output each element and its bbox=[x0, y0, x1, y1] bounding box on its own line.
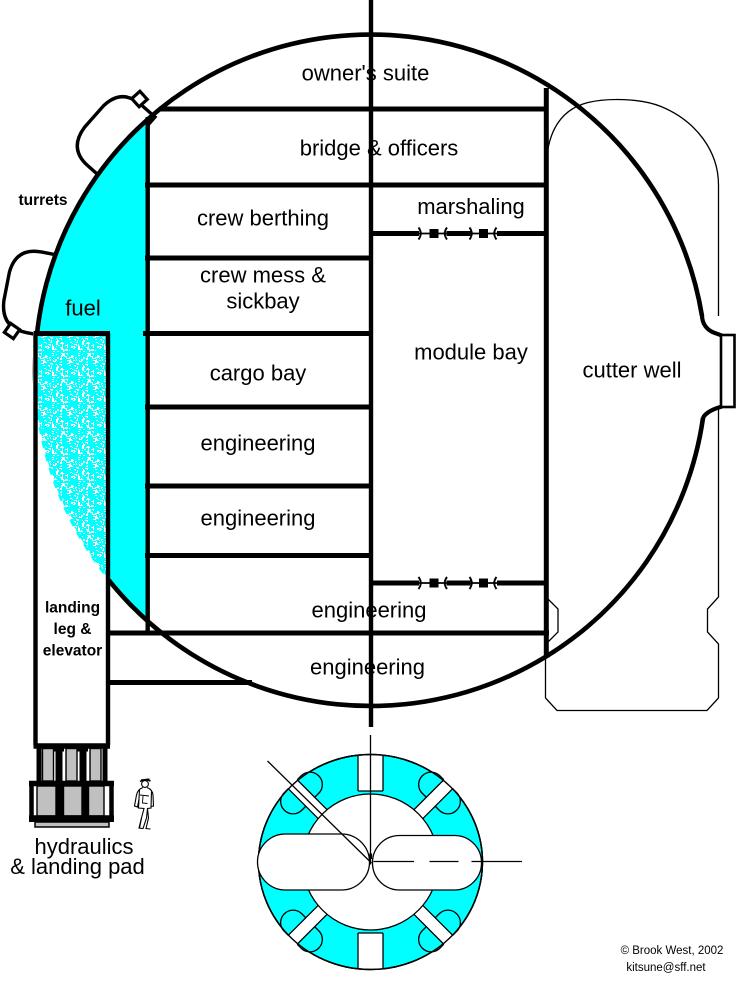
svg-text:elevator: elevator bbox=[43, 643, 102, 660]
svg-text:cargo bay: cargo bay bbox=[210, 361, 307, 386]
svg-text:bridge & officers: bridge & officers bbox=[300, 136, 459, 161]
svg-text:marshaling: marshaling bbox=[417, 194, 525, 219]
svg-text:turrets: turrets bbox=[18, 192, 67, 209]
svg-text:crew mess &: crew mess & bbox=[200, 263, 326, 288]
svg-text:sickbay: sickbay bbox=[226, 289, 299, 314]
svg-text:engineering: engineering bbox=[201, 431, 316, 456]
svg-text:landing: landing bbox=[45, 600, 100, 617]
svg-text:crew berthing: crew berthing bbox=[197, 206, 329, 231]
svg-text:& landing pad: & landing pad bbox=[10, 854, 145, 879]
svg-text:engineering: engineering bbox=[201, 506, 316, 531]
svg-text:kitsune@sff.net: kitsune@sff.net bbox=[626, 962, 706, 974]
svg-text:cutter well: cutter well bbox=[582, 358, 681, 383]
svg-text:owner's suite: owner's suite bbox=[302, 61, 430, 86]
svg-text:engineering: engineering bbox=[312, 598, 427, 623]
svg-text:fuel: fuel bbox=[65, 296, 100, 321]
svg-text:module bay: module bay bbox=[414, 340, 528, 365]
svg-text:leg &: leg & bbox=[54, 621, 92, 638]
svg-text:engineering: engineering bbox=[310, 655, 425, 680]
svg-text:© Brook West, 2002: © Brook West, 2002 bbox=[621, 945, 724, 957]
